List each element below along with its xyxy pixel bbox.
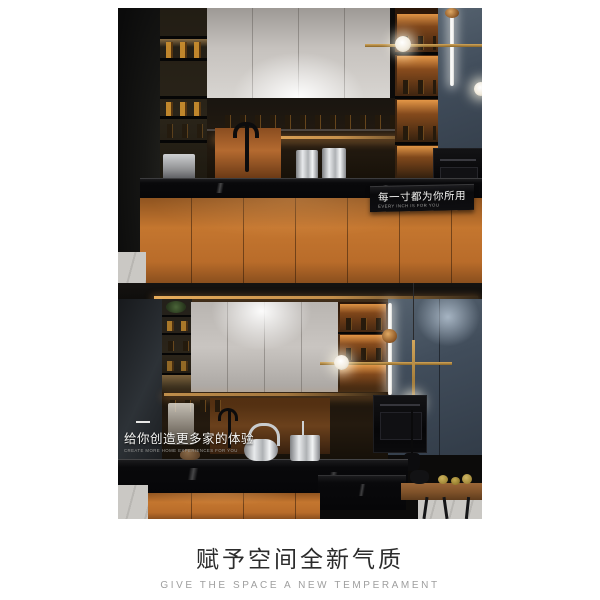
floor-corner xyxy=(118,252,146,283)
marble-vein xyxy=(180,183,260,193)
faucet-spout xyxy=(218,408,238,421)
under-cabinet-light xyxy=(164,393,386,396)
shelf-board xyxy=(338,332,388,334)
shelf-board xyxy=(160,116,208,119)
caption-dash xyxy=(136,421,150,423)
upper-cabinets-white xyxy=(191,302,338,392)
pendant-ball xyxy=(334,355,349,370)
marble-vein xyxy=(332,484,392,496)
kitchen-render-bottom: 给你创造更多家的体验 CREATE MORE HOME EXPERIENCES … xyxy=(118,283,482,519)
floor-left xyxy=(118,485,148,519)
caption-en: CREATE MORE HOME EXPERIENCES FOR YOU xyxy=(124,449,232,453)
oven-appliance xyxy=(373,395,427,453)
wall-light-glow xyxy=(406,299,482,359)
shelf-board xyxy=(162,353,192,355)
shelf-board xyxy=(395,96,440,99)
wall-light-ball xyxy=(474,82,482,96)
niche-bottles xyxy=(342,348,384,360)
caption-en: EVERY INCH IS FOR YOU xyxy=(378,203,447,209)
teapot-black xyxy=(410,470,429,484)
shelf-board xyxy=(160,96,208,99)
pendant-wire xyxy=(413,283,414,341)
plant-leaves xyxy=(166,301,186,313)
niche-bottles xyxy=(399,80,436,94)
shelf-board xyxy=(395,142,440,145)
pendant-gold-disc xyxy=(445,8,459,18)
pendant-copper-ball xyxy=(382,329,397,343)
faucet-spout xyxy=(233,122,259,138)
bottle-row xyxy=(164,321,190,331)
caption-cn: 给你创造更多家的体验 xyxy=(124,428,274,447)
footer: 赋予空间全新气质 GIVE THE SPACE A NEW TEMPERAMEN… xyxy=(0,519,600,600)
milk-pot xyxy=(290,435,320,461)
niche-bottles xyxy=(342,318,384,330)
oven-handle xyxy=(440,159,476,161)
pendant-bar-gold xyxy=(365,44,482,47)
fruit xyxy=(462,474,472,484)
pendant-stem xyxy=(411,410,413,456)
shelf-board xyxy=(162,333,192,335)
wine-niche xyxy=(338,302,388,392)
promo-page: 每一寸都为你所用 EVERY INCH IS FOR YOU xyxy=(0,0,600,600)
glass-row xyxy=(163,124,205,138)
shelf-unit-left xyxy=(162,299,192,395)
stock-pot xyxy=(322,148,346,180)
footer-title: 赋予空间全新气质 xyxy=(0,540,600,574)
shelf-light xyxy=(162,375,192,393)
oven-glass xyxy=(380,412,422,440)
coffee-machine xyxy=(163,154,195,180)
niche-bottles xyxy=(399,126,436,140)
niche-glow xyxy=(397,146,438,178)
shelf-board xyxy=(160,58,208,61)
shelf-board xyxy=(395,52,440,55)
kitchen-render-top: 每一寸都为你所用 EVERY INCH IS FOR YOU xyxy=(118,8,482,283)
caption-block: 给你创造更多家的体验 CREATE MORE HOME EXPERIENCES … xyxy=(124,421,274,455)
oven-handle xyxy=(380,404,420,406)
pendant-ball xyxy=(395,36,411,52)
upper-cabinets-white xyxy=(207,8,390,98)
niche-glow xyxy=(340,365,386,392)
fruit xyxy=(438,475,448,484)
footer-subtitle: GIVE THE SPACE A NEW TEMPERAMENT xyxy=(0,580,600,591)
shelf-board xyxy=(160,140,208,143)
shelf-board xyxy=(162,315,192,317)
tube-pendant-light xyxy=(450,8,454,86)
stock-pot xyxy=(296,150,318,180)
fruit xyxy=(451,477,460,485)
bottle-row xyxy=(164,341,190,351)
caption-band: 每一寸都为你所用 EVERY INCH IS FOR YOU xyxy=(370,184,474,212)
bottle-row xyxy=(163,102,205,116)
tube-pendant-light xyxy=(388,303,392,395)
bottle-row xyxy=(164,361,190,371)
bottle-row xyxy=(163,42,205,58)
island-base-orange xyxy=(140,493,320,519)
marble-vein xyxy=(138,468,248,480)
caption-cn: 每一寸都为你所用 xyxy=(378,188,474,205)
island-bar-slab xyxy=(318,475,406,510)
